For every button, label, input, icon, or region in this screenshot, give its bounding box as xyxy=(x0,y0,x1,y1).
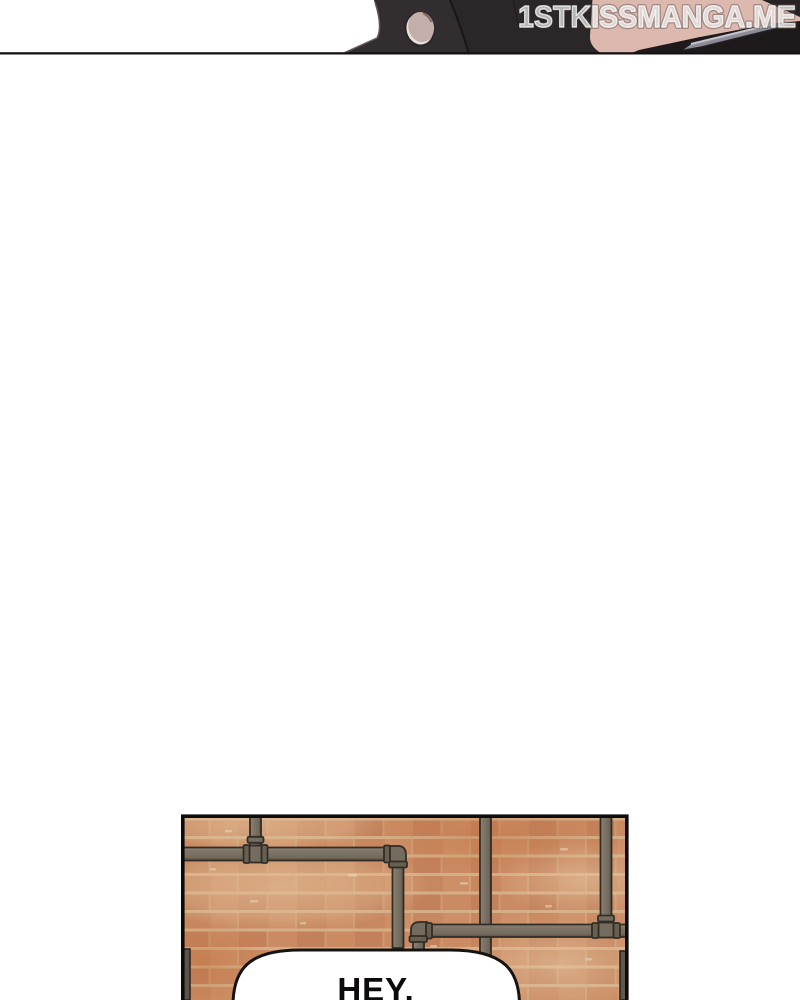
svg-text:HEY,: HEY, xyxy=(337,971,414,1000)
svg-text:1STKISSMANGA.ME: 1STKISSMANGA.ME xyxy=(518,0,796,34)
